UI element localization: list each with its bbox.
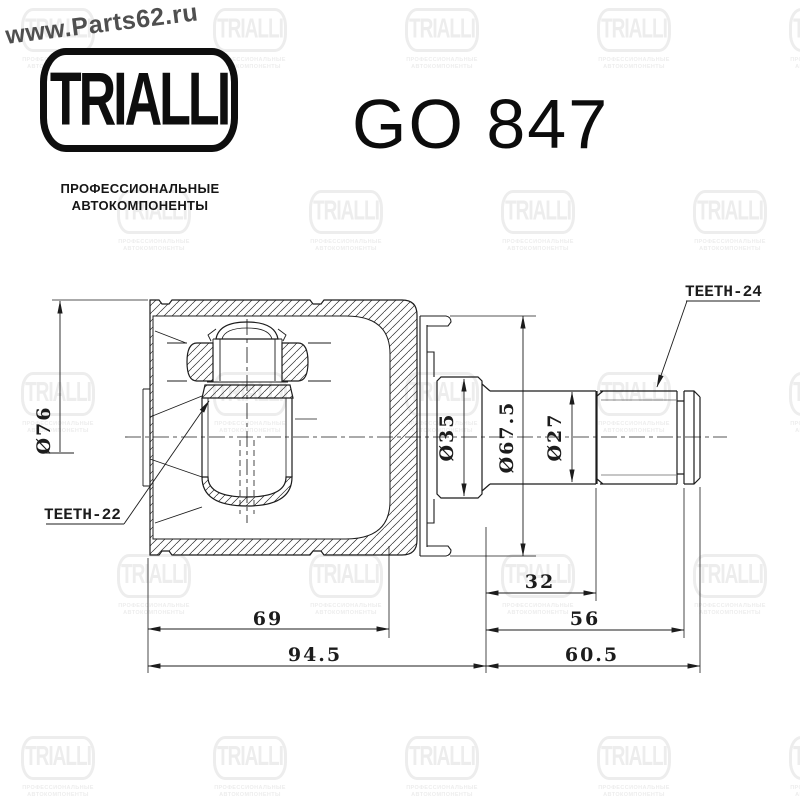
roller-left: [187, 343, 213, 381]
housing-wall-hatch: [150, 300, 417, 555]
trialli-logo-text: TRIALLI: [50, 57, 228, 144]
label-teeth-22: TEETH-22: [44, 506, 121, 524]
label-shaft-diameter: Ø27: [544, 413, 566, 462]
end-collar: [684, 391, 700, 484]
shaft-transition: [482, 384, 490, 491]
spline-hub-band: [202, 385, 293, 398]
logo-subtitle-line2: АВТОКОМПОНЕНТЫ: [30, 197, 250, 214]
label-len-94-5: 94.5: [288, 644, 342, 666]
trialli-logo: TRIALLI: [40, 48, 238, 152]
label-hub-diameter: Ø35: [436, 413, 458, 462]
label-len-56: 56: [570, 608, 600, 630]
catalog-part-image: { "header": { "site": "www.Parts62.ru", …: [0, 0, 800, 800]
teeth24-leader: [657, 301, 687, 387]
extension-lines: [52, 300, 700, 673]
cv-joint-section: [44, 300, 760, 673]
logo-subtitle-line1: ПРОФЕССИОНАЛЬНЫЕ: [30, 180, 250, 197]
snap-ring-groove: [677, 391, 684, 484]
label-teeth-24: TEETH-24: [685, 283, 762, 301]
label-len-32: 32: [525, 571, 555, 593]
spline-root-lines: [601, 400, 676, 475]
teeth22-leader: [124, 401, 209, 524]
roller-right: [282, 343, 308, 381]
label-flange-diameter: Ø67.5: [496, 401, 518, 474]
label-len-69: 69: [253, 608, 283, 630]
needle-cage: [207, 339, 288, 382]
logo-subtitle: ПРОФЕССИОНАЛЬНЫЕ АВТОКОМПОНЕНТЫ: [30, 180, 250, 214]
bore-inner-lines: [208, 398, 317, 477]
part-number: GO 847: [352, 84, 609, 164]
spline-section: [597, 391, 677, 484]
label-len-60-5: 60.5: [565, 644, 619, 666]
housing-outline: [150, 300, 417, 555]
label-outer-diameter: Ø76: [33, 406, 55, 455]
